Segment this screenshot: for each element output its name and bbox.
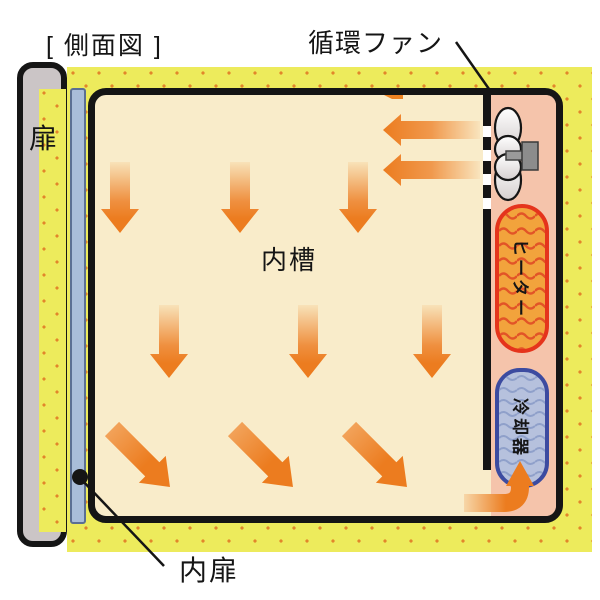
circulation-fan-icon bbox=[488, 104, 544, 204]
heater-label: ヒーター bbox=[510, 239, 535, 319]
heater: ヒーター bbox=[495, 204, 549, 353]
inner-door-label: 内扉 bbox=[179, 549, 239, 589]
side-view-diagram: [ 側面図 ] 循環ファン bbox=[0, 0, 600, 600]
view-title: [ 側面図 ] bbox=[46, 26, 163, 62]
compartment-divider-bottom bbox=[483, 209, 491, 470]
door-label: 扉 bbox=[29, 117, 57, 157]
circulation-fan-label: 循環ファン bbox=[308, 23, 443, 60]
inner-door-knob bbox=[72, 469, 88, 485]
inner-door bbox=[70, 88, 86, 524]
fan-motor-body bbox=[522, 142, 538, 170]
cooler: 冷却器 bbox=[495, 368, 549, 488]
inner-chamber-label: 内槽 bbox=[261, 240, 317, 277]
cooler-label: 冷却器 bbox=[510, 398, 535, 458]
